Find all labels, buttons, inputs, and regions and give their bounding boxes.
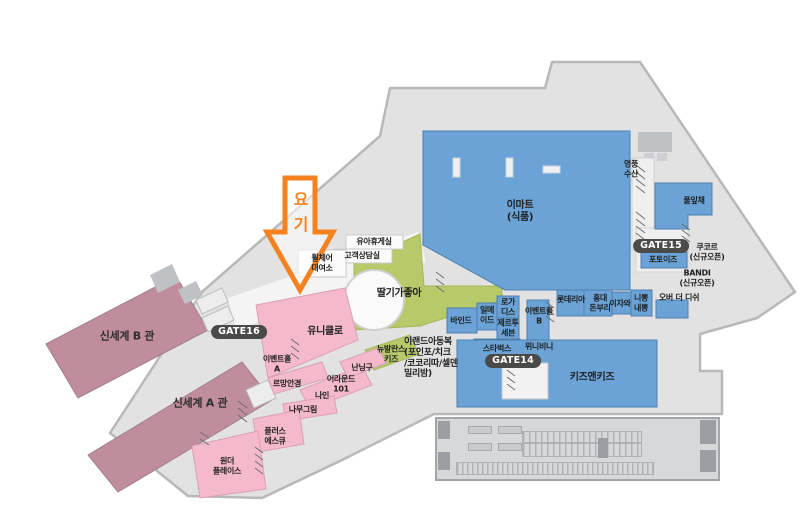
floor-map-svg (0, 0, 800, 531)
gate16-badge: GATE16 (211, 325, 267, 339)
parking-stalls (456, 462, 654, 475)
shop-nippong-cell (631, 290, 652, 316)
parking-block (700, 420, 716, 444)
shop-jertu-seven-cell (497, 318, 519, 340)
parking-stalls (522, 431, 642, 457)
shop-lotteria-cell (557, 290, 584, 316)
parking-block (438, 452, 450, 470)
parking-stall-bar (498, 426, 522, 434)
roof-detail-small (657, 153, 667, 161)
emart-escalator (453, 158, 460, 177)
parking-stall-bar (468, 443, 492, 451)
parking-stall-bar (468, 426, 492, 434)
roof-detail (638, 132, 672, 152)
shop-event-hall-b-cell (527, 300, 549, 340)
yogi-marker-label: 요 기 (294, 187, 309, 237)
shop-rogatis-cell (497, 296, 519, 318)
gate14-lobby (502, 363, 548, 399)
shop-izawa-cell (612, 292, 631, 314)
area-kids-and-kids (457, 340, 657, 407)
parking-block (598, 438, 608, 458)
shop-ilmeide-cell (477, 303, 497, 330)
mall-floor-map: 신세계 B 관 신세계 A 관 이마트 (식품) 키즈앤키즈 딸기가좋아 유니클… (0, 0, 800, 531)
gate14-badge: GATE14 (485, 354, 541, 368)
emart-escalator (506, 158, 513, 177)
shop-bind-cell (447, 308, 477, 333)
facility-nursing-room-box (346, 235, 403, 249)
shop-photoiz-cell (641, 252, 687, 268)
emart-escalator (543, 166, 560, 173)
parking-stall-bar (498, 443, 522, 451)
parking-block (700, 450, 716, 472)
shop-over-the-dish-cell (656, 300, 688, 318)
parking-block (438, 421, 450, 439)
shop-hongdae-donburi-cell (584, 290, 612, 316)
gate15-badge: GATE15 (633, 239, 689, 253)
